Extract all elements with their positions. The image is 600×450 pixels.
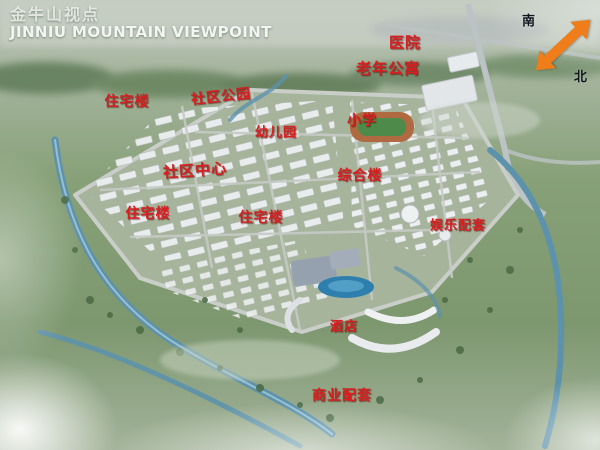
map-label-hospital: 医院 (389, 32, 421, 53)
map-label-residential-building-1: 住宅楼 (105, 91, 150, 111)
map-label-residential-building-2: 住宅楼 (126, 203, 171, 223)
map-label-senior-apartments: 老年公寓 (356, 58, 420, 79)
map-label-entertainment-facilities: 娱乐配套 (430, 215, 486, 234)
map-label-community-center: 社区中心 (162, 157, 227, 182)
map-label-commercial-facilities: 商业配套 (312, 385, 372, 405)
map-label-kindergarten: 幼儿园 (255, 122, 297, 141)
compass: 南 北 (518, 2, 600, 84)
aerial-render (0, 0, 600, 450)
page-title-zh: 金牛山视点 (10, 6, 272, 24)
compass-arrow-icon (524, 7, 600, 82)
aerial-viewpoint-image: 金牛山视点 JINNIU MOUNTAIN VIEWPOINT 南 北 医院老年… (0, 0, 600, 450)
compass-north-label: 北 (574, 66, 587, 85)
map-label-residential-building-3: 住宅楼 (239, 207, 284, 227)
page-title-en: JINNIU MOUNTAIN VIEWPOINT (10, 24, 272, 41)
title-block: 金牛山视点 JINNIU MOUNTAIN VIEWPOINT (10, 6, 272, 42)
map-label-complex-building: 综合楼 (338, 165, 383, 185)
map-label-hotel: 酒店 (330, 316, 358, 335)
compass-south-label: 南 (522, 10, 535, 29)
map-label-primary-school: 小学 (347, 110, 377, 130)
